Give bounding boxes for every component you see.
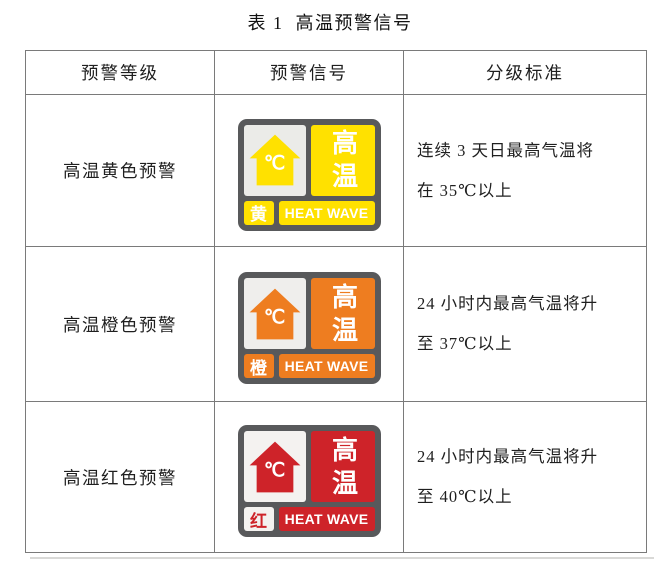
bottom-divider: [30, 557, 654, 559]
criteria-cell-red: 24 小时内最高气温将升 至 40℃以上: [404, 402, 646, 552]
level-cell-orange: 高温橙色预警: [26, 247, 215, 402]
house-panel: ℃: [244, 125, 306, 196]
banner-label: HEAT WAVE: [279, 201, 375, 225]
column-header-signal: 预警信号: [215, 51, 404, 95]
vertical-label-panel: 高温: [311, 278, 375, 349]
criteria-line: 24 小时内最高气温将升: [417, 284, 598, 324]
page-title: 表 1 高温预警信号: [0, 9, 660, 35]
celsius-label: ℃: [264, 461, 285, 480]
criteria-line: 在 35℃以上: [417, 171, 513, 211]
level-cell-yellow: 高温黄色预警: [26, 95, 215, 247]
criteria-line: 连续 3 天日最高气温将: [417, 131, 594, 171]
vertical-label-panel: 高温: [311, 125, 375, 196]
house-panel: ℃: [244, 431, 306, 502]
document-page: 表 1 高温预警信号 预警等级 预警信号 分级标准 高温黄色预警 ℃ 高温: [0, 0, 660, 564]
column-header-criteria: 分级标准: [404, 51, 646, 95]
criteria-line: 至 37℃以上: [417, 324, 513, 364]
signal-cell-yellow: ℃ 高温 黄 HEAT WAVE: [215, 95, 404, 247]
vertical-label-panel: 高温: [311, 431, 375, 502]
heat-wave-sign-yellow-icon: ℃ 高温 黄 HEAT WAVE: [238, 119, 381, 231]
corner-label: 黄: [244, 201, 274, 225]
signal-cell-orange: ℃ 高温 橙 HEAT WAVE: [215, 247, 404, 402]
criteria-cell-orange: 24 小时内最高气温将升 至 37℃以上: [404, 247, 646, 402]
criteria-line: 24 小时内最高气温将升: [417, 437, 598, 477]
house-panel: ℃: [244, 278, 306, 349]
celsius-label: ℃: [264, 155, 285, 174]
corner-label: 红: [244, 507, 274, 531]
banner-label: HEAT WAVE: [279, 354, 375, 378]
signal-cell-red: ℃ 高温 红 HEAT WAVE: [215, 402, 404, 552]
vertical-label: 高温: [330, 129, 356, 195]
vertical-label: 高温: [330, 283, 356, 349]
corner-label: 橙: [244, 354, 274, 378]
vertical-label: 高温: [330, 436, 356, 502]
level-cell-red: 高温红色预警: [26, 402, 215, 552]
column-header-level: 预警等级: [26, 51, 215, 95]
criteria-cell-yellow: 连续 3 天日最高气温将 在 35℃以上: [404, 95, 646, 247]
banner-label: HEAT WAVE: [279, 507, 375, 531]
celsius-label: ℃: [264, 308, 285, 327]
criteria-line: 至 40℃以上: [417, 477, 513, 517]
heat-wave-sign-red-icon: ℃ 高温 红 HEAT WAVE: [238, 425, 381, 537]
heat-wave-sign-orange-icon: ℃ 高温 橙 HEAT WAVE: [238, 272, 381, 384]
heat-warning-table: 预警等级 预警信号 分级标准 高温黄色预警 ℃ 高温: [25, 50, 647, 553]
